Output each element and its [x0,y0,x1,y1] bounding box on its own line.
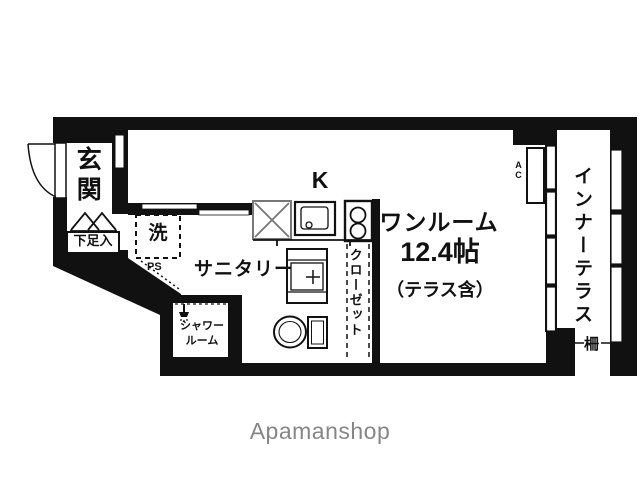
burner [351,224,366,239]
shower-room-label-line2: ルーム [176,336,228,348]
fence-label: 柵 [584,337,599,353]
closet-label: クローゼット [348,248,362,338]
floor-plan: 玄関 下足入 洗 PS サニタリー シャワー ルーム K クローゼット ワンルー… [0,0,640,480]
toilet [274,317,327,349]
ac-label: AC [513,160,522,180]
shoe-box-label: 下足入 [67,234,119,248]
shoe-shelf-zigzag [70,213,117,231]
refrigerator-space [253,201,291,239]
washer-label: 洗 [136,224,180,244]
shower-room-label-line1: シャワー [176,321,228,333]
entrance-inner-door [115,135,124,168]
terrace-label: インナーテラス [571,166,591,327]
burner [351,208,366,223]
stove [345,201,372,241]
watermark: Apamanshop [0,419,640,443]
entrance-door-panel [55,143,66,198]
room-name-label: ワンルーム [377,210,501,234]
terrace-window [547,146,556,331]
room-size-label: 12.4帖 [375,238,505,266]
sanitary-label: サニタリー [194,260,294,280]
wall-left-mid [53,197,67,255]
entrance-door-swing [28,144,56,197]
entrance-door [28,143,66,198]
kitchen-sink [295,202,335,235]
kitchen-label: K [303,168,337,192]
room-note-label: （テラス含） [375,281,505,300]
pipe-space-label: PS [147,262,162,274]
kitchen-counter-edge [253,240,372,246]
wall-top [53,117,637,130]
entrance-label: 玄関 [74,146,100,206]
outer-window [611,150,622,342]
wall-bottom [233,363,575,376]
wall-left-upper [53,117,67,143]
wall-terrace-stub [513,130,557,145]
ac-unit [527,148,544,203]
